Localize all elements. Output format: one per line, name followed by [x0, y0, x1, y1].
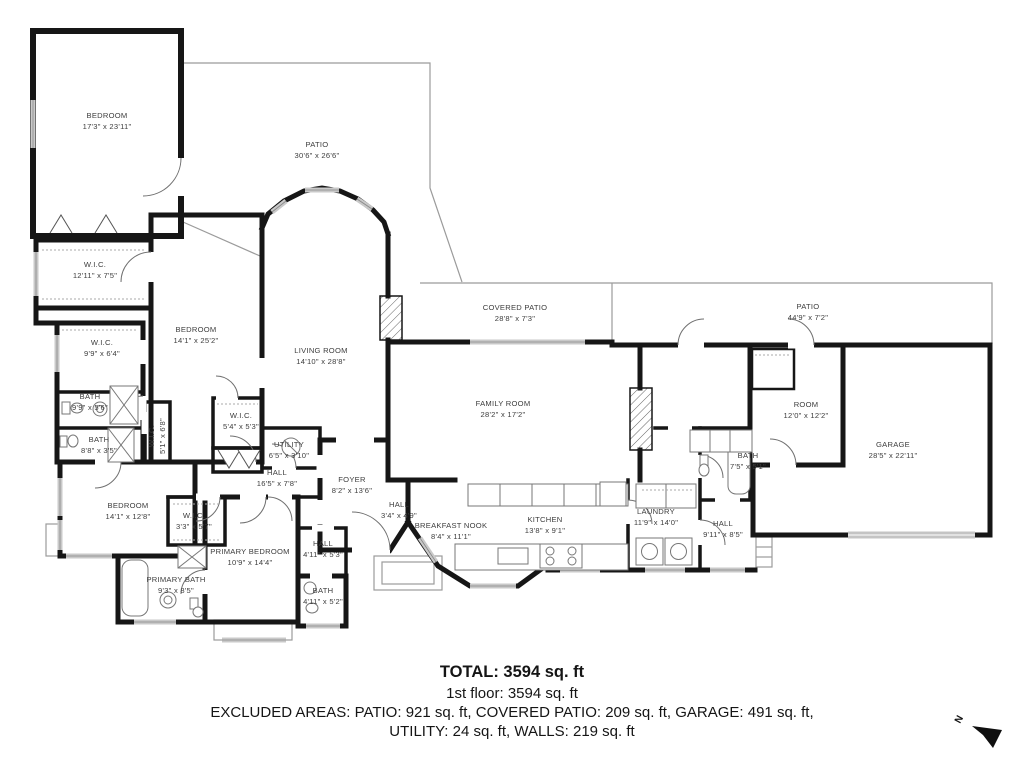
room-label-bedroom-left: BEDROOM14'1" x 25'2": [174, 324, 219, 346]
room-dimensions: 7'5" x 5'1": [730, 461, 766, 472]
room-label-foyer: FOYER8'2" x 13'6": [332, 474, 372, 496]
room-name: HALL: [303, 538, 343, 549]
room-label-primary-bath: PRIMARY BATH9'3" x 8'5": [146, 574, 205, 596]
room-name: PATIO: [295, 139, 340, 150]
floor-plan-drawing: [0, 0, 1024, 768]
room-label-utility: UTILITY6'5" x 3'10": [269, 439, 309, 461]
room-dimensions: 5'1" x 6'8": [157, 418, 168, 454]
room-dimensions: 44'9" x 7'2": [788, 312, 828, 323]
room-label-wic-large: W.I.C.12'11" x 7'5": [73, 259, 117, 281]
room-name: BREAKFAST NOOK: [415, 520, 488, 531]
room-name: W.I.C.: [223, 410, 259, 421]
room-dimensions: 9'11" x 8'5": [703, 529, 743, 540]
room-label-laundry: LAUNDRY11'9" x 14'0": [634, 506, 678, 528]
room-label-bath-1: BATH9'9" x 5'6": [72, 391, 108, 413]
room-name: LAUNDRY: [634, 506, 678, 517]
room-label-living-room: LIVING ROOM14'10" x 28'8": [294, 345, 347, 367]
room-dimensions: 28'8" x 7'3": [483, 313, 548, 324]
room-name: BATH: [303, 585, 343, 596]
room-label-kitchen: KITCHEN13'8" x 9'1": [525, 514, 565, 536]
room-name: UTILITY: [269, 439, 309, 450]
room-label-wic-5: W.I.C.3'3" x 5'7": [176, 510, 212, 532]
room-name: ROOM: [784, 399, 829, 410]
room-dimensions: 8'8" x 3'5": [81, 445, 117, 456]
room-dimensions: 28'2" x 17'2": [476, 409, 531, 420]
room-label-hall-4: HALL4'11" x 5'3": [303, 538, 343, 560]
room-label-bedroom-top-left: BEDROOM17'3" x 23'11": [83, 110, 132, 132]
room-dimensions: 4'11" x 5'3": [303, 549, 343, 560]
room-name: BATH: [730, 450, 766, 461]
room-label-patio-top: PATIO30'6" x 26'6": [295, 139, 340, 161]
room-label-primary-bedroom: PRIMARY BEDROOM10'9" x 14'4": [210, 546, 289, 568]
room-name: W.I.C.: [73, 259, 117, 270]
floor-area-text: 1st floor: 3594 sq. ft: [0, 685, 1024, 702]
room-dimensions: 5'4" x 5'3": [223, 421, 259, 432]
room-label-bath-3: BATH7'5" x 5'1": [730, 450, 766, 472]
room-name: HALL: [381, 499, 417, 510]
room-label-bath-4: BATH4'11" x 5'2": [303, 585, 343, 607]
excluded-areas-line1: EXCLUDED AREAS: PATIO: 921 sq. ft, COVER…: [0, 704, 1024, 721]
room-label-garage: GARAGE28'5" x 22'11": [869, 439, 918, 461]
room-name: HALL: [703, 518, 743, 529]
room-label-breakfast-nook: BREAKFAST NOOK8'4" x 11'1": [415, 520, 488, 542]
room-name: BATH: [81, 434, 117, 445]
room-name: BEDROOM: [83, 110, 132, 121]
room-dimensions: 14'1" x 12'8": [106, 511, 151, 522]
room-label-bath-2: BATH8'8" x 3'5": [81, 434, 117, 456]
room-dimensions: 6'5" x 3'10": [269, 450, 309, 461]
room-name: COVERED PATIO: [483, 302, 548, 313]
excluded-areas-line2: UTILITY: 24 sq. ft, WALLS: 219 sq. ft: [0, 723, 1024, 740]
room-dimensions: 8'4" x 11'1": [415, 531, 488, 542]
room-name: GARAGE: [869, 439, 918, 450]
room-dimensions: 14'1" x 25'2": [174, 335, 219, 346]
floor-plan: BEDROOM17'3" x 23'11"PATIO30'6" x 26'6"W…: [0, 0, 1024, 768]
room-dimensions: 14'10" x 28'8": [294, 356, 347, 367]
room-dimensions: 13'8" x 9'1": [525, 525, 565, 536]
room-label-wic-4: W.I.C.5'4" x 5'3": [223, 410, 259, 432]
north-arrow-icon: N: [930, 698, 1020, 760]
room-name: BATH: [72, 391, 108, 402]
room-label-wic-hall: W.I.C.5'1" x 6'8": [146, 418, 168, 454]
room-name: BEDROOM: [174, 324, 219, 335]
room-dimensions: 4'11" x 5'2": [303, 596, 343, 607]
room-name: PRIMARY BATH: [146, 574, 205, 585]
room-label-patio-right: PATIO44'9" x 7'2": [788, 301, 828, 323]
room-label-hall-3: HALL9'11" x 8'5": [703, 518, 743, 540]
room-dimensions: 28'5" x 22'11": [869, 450, 918, 461]
room-name: FOYER: [332, 474, 372, 485]
room-name: PATIO: [788, 301, 828, 312]
room-label-covered-patio: COVERED PATIO28'8" x 7'3": [483, 302, 548, 324]
room-label-wic-2: W.I.C.9'9" x 6'4": [84, 337, 120, 359]
room-name: FAMILY ROOM: [476, 398, 531, 409]
room-label-bedroom-bottom-left: BEDROOM14'1" x 12'8": [106, 500, 151, 522]
room-dimensions: 30'6" x 26'6": [295, 150, 340, 161]
total-area-text: TOTAL: 3594 sq. ft: [0, 663, 1024, 682]
room-name: LIVING ROOM: [294, 345, 347, 356]
room-dimensions: 11'9" x 14'0": [634, 517, 678, 528]
room-dimensions: 3'3" x 5'7": [176, 521, 212, 532]
room-dimensions: 8'2" x 13'6": [332, 485, 372, 496]
room-label-hall-2: HALL3'4" x 4'9": [381, 499, 417, 521]
room-name: W.I.C.: [146, 418, 157, 454]
room-dimensions: 3'4" x 4'9": [381, 510, 417, 521]
room-dimensions: 9'9" x 6'4": [84, 348, 120, 359]
room-dimensions: 17'3" x 23'11": [83, 121, 132, 132]
room-name: PRIMARY BEDROOM: [210, 546, 289, 557]
room-name: HALL: [257, 467, 297, 478]
area-summary: TOTAL: 3594 sq. ft 1st floor: 3594 sq. f…: [0, 663, 1024, 742]
north-label: N: [953, 714, 966, 726]
room-label-room: ROOM12'0" x 12'2": [784, 399, 829, 421]
room-label-hall-1: HALL16'5" x 7'8": [257, 467, 297, 489]
room-dimensions: 10'9" x 14'4": [210, 557, 289, 568]
room-name: BEDROOM: [106, 500, 151, 511]
room-name: W.I.C.: [84, 337, 120, 348]
room-dimensions: 9'9" x 5'6": [72, 402, 108, 413]
room-dimensions: 16'5" x 7'8": [257, 478, 297, 489]
room-name: KITCHEN: [525, 514, 565, 525]
room-label-family-room: FAMILY ROOM28'2" x 17'2": [476, 398, 531, 420]
room-name: W.I.C.: [176, 510, 212, 521]
room-dimensions: 12'11" x 7'5": [73, 270, 117, 281]
room-dimensions: 9'3" x 8'5": [146, 585, 205, 596]
room-dimensions: 12'0" x 12'2": [784, 410, 829, 421]
